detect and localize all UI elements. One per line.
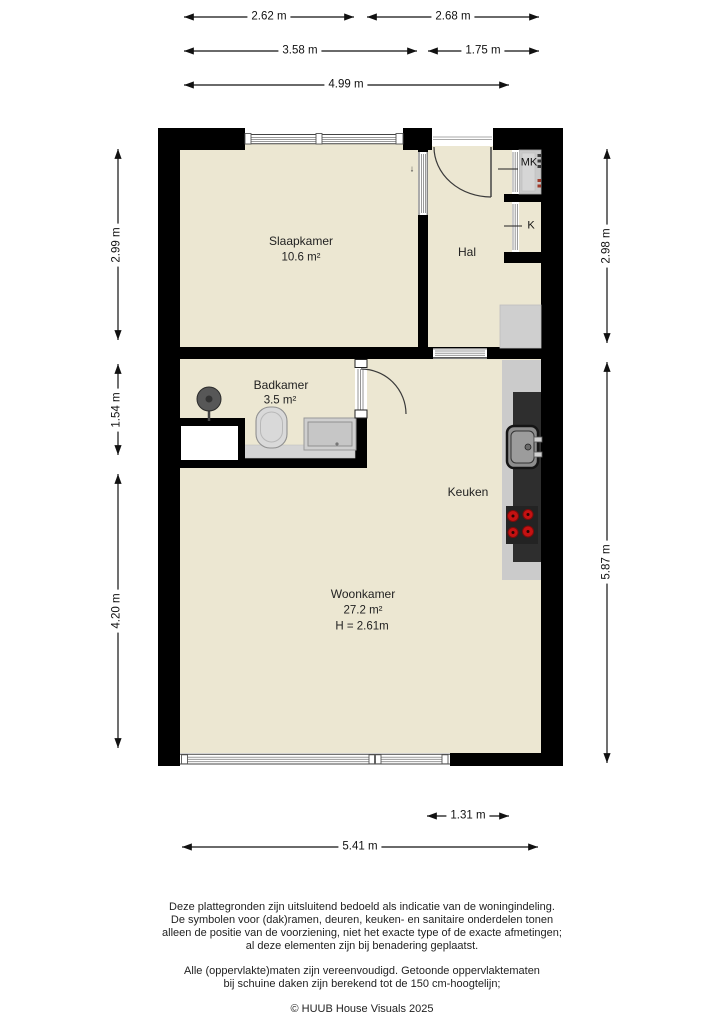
kitchen-sink xyxy=(507,426,542,468)
label-slaapkamer: Slaapkamer xyxy=(269,235,333,247)
disclaimer-line: Deze plattegronden zijn uitsluitend bedo… xyxy=(0,901,724,914)
label-hal: Hal xyxy=(458,246,476,258)
dim-right-5-87: 5.87 m xyxy=(601,540,613,583)
dim-top-3-58: 3.58 m xyxy=(278,45,321,57)
disclaimer-line: alleen de positie van de voorziening, ni… xyxy=(0,927,724,940)
kitchen-counter xyxy=(502,360,541,580)
label-woonkamer: Woonkamer xyxy=(331,588,395,600)
disclaimer-line: Alle (oppervlakte)maten zijn vereenvoudi… xyxy=(0,965,724,978)
label-keuken: Keuken xyxy=(448,486,489,498)
dim-left-1-54: 1.54 m xyxy=(111,388,123,431)
copyright-line: © HUUB House Visuals 2025 xyxy=(0,1003,724,1016)
dim-top-2-62: 2.62 m xyxy=(247,11,290,23)
label-slaapkamer-area: 10.6 m² xyxy=(282,252,321,264)
toilet xyxy=(256,407,287,448)
kitchen-hob xyxy=(506,506,538,544)
washbasin xyxy=(304,418,356,450)
disclaimer-line: al deze elementen zijn bij benadering ge… xyxy=(0,940,724,953)
sliding-door-slaapkamer xyxy=(418,152,428,215)
dim-top-1-75: 1.75 m xyxy=(461,45,504,57)
label-meterkast: MK xyxy=(521,158,538,169)
label-woonkamer-height: H = 2.61m xyxy=(335,621,388,633)
sliding-door-hal xyxy=(433,348,487,359)
fridge-cabinet xyxy=(500,305,541,348)
dim-left-4-20: 4.20 m xyxy=(111,589,123,632)
dim-right-2-98: 2.98 m xyxy=(601,224,613,267)
dim-left-2-99: 2.99 m xyxy=(111,223,123,266)
label-kast: K xyxy=(527,221,534,232)
door-slide-direction-marker: ↓ xyxy=(410,165,415,174)
window-top xyxy=(245,128,403,150)
label-woonkamer-area: 27.2 m² xyxy=(344,605,383,617)
window-bottom xyxy=(180,753,450,766)
shower xyxy=(173,418,245,468)
label-badkamer: Badkamer xyxy=(254,379,309,391)
dim-top-4-99: 4.99 m xyxy=(324,79,367,91)
disclaimer-line: bij schuine daken zijn berekend tot de 1… xyxy=(0,978,724,991)
dim-top-2-68: 2.68 m xyxy=(431,11,474,23)
disclaimer-line: De symbolen voor (dak)ramen, deuren, keu… xyxy=(0,914,724,927)
floorplan-drawing xyxy=(0,0,724,1024)
dim-bottom-1-31: 1.31 m xyxy=(446,810,489,822)
disclaimer-footer: Deze plattegronden zijn uitsluitend bedo… xyxy=(0,901,724,1016)
floor-slaapkamer xyxy=(180,150,418,347)
floorplan-page: 2.62 m 2.68 m 3.58 m 1.75 m 4.99 m 2.99 … xyxy=(0,0,724,1024)
dim-bottom-5-41: 5.41 m xyxy=(338,841,381,853)
label-badkamer-area: 3.5 m² xyxy=(264,395,297,407)
